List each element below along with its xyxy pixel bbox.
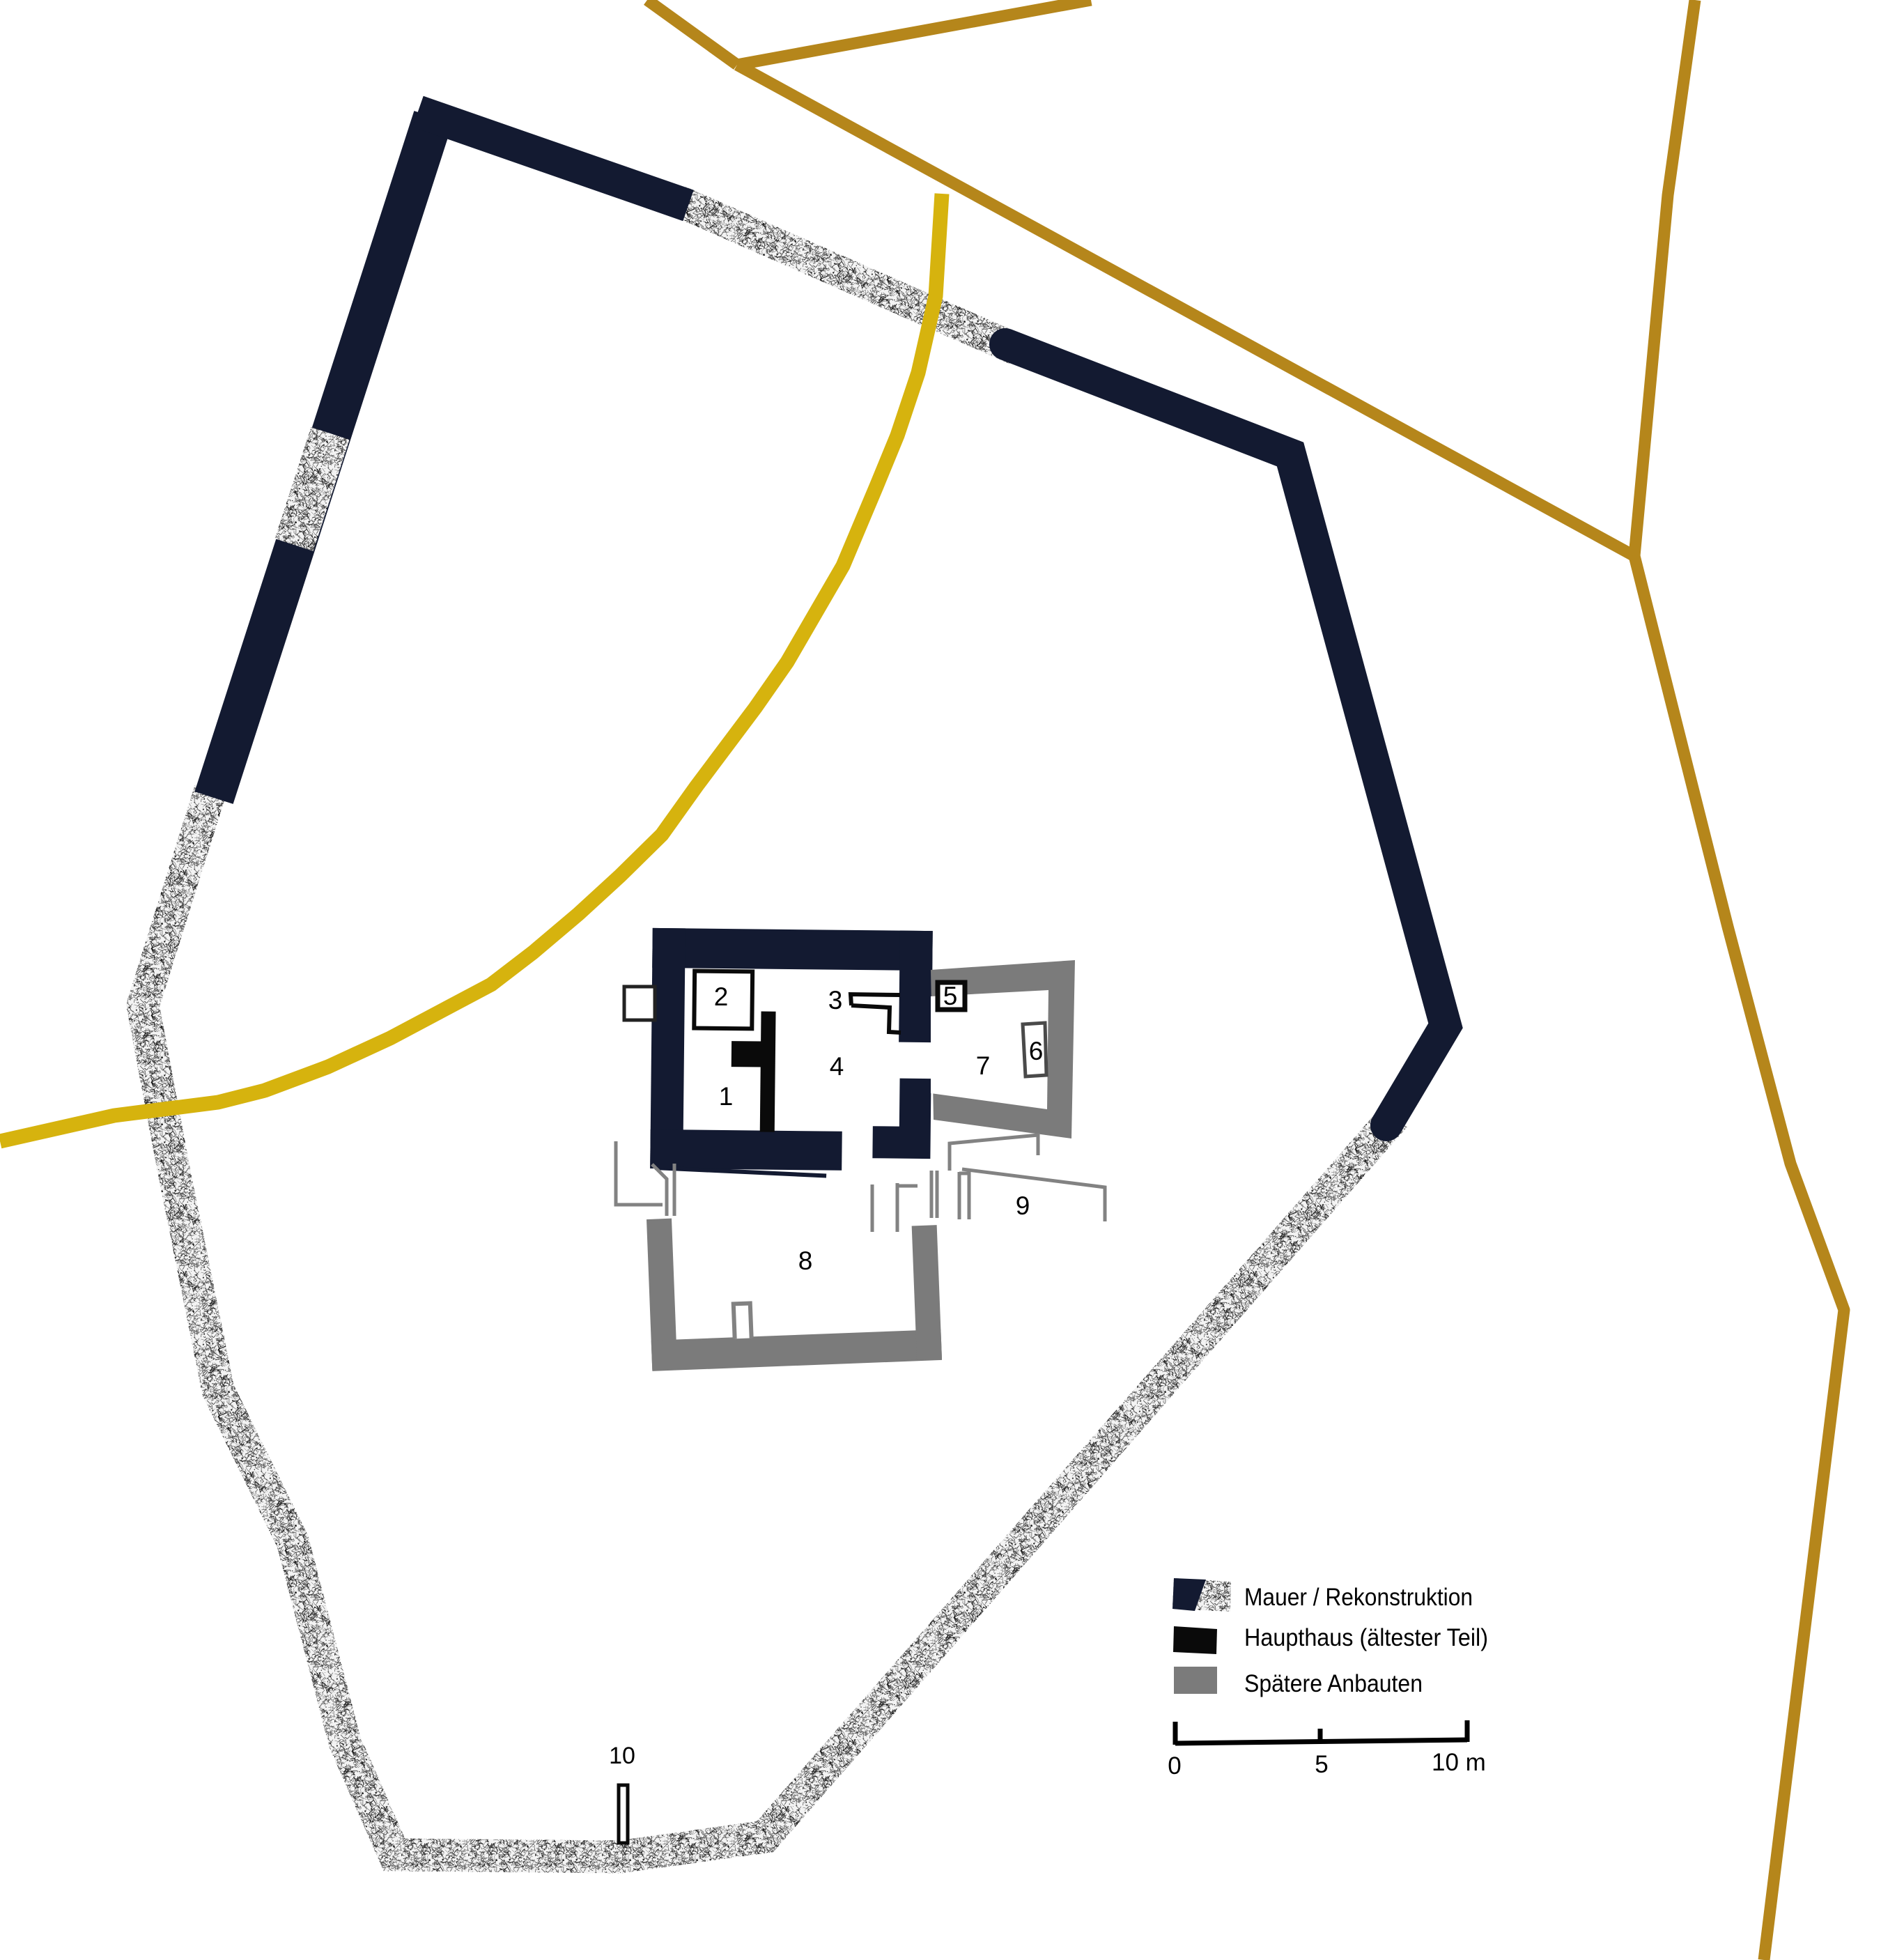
svg-text:6: 6: [1029, 1037, 1044, 1065]
svg-text:5: 5: [943, 982, 958, 1010]
svg-text:5: 5: [1315, 1751, 1328, 1778]
svg-text:Mauer / Rekonstruktion: Mauer / Rekonstruktion: [1244, 1584, 1473, 1611]
svg-text:0: 0: [1168, 1752, 1181, 1780]
svg-text:Spätere Anbauten: Spätere Anbauten: [1244, 1670, 1423, 1697]
svg-text:2: 2: [714, 982, 729, 1011]
svg-text:9: 9: [1016, 1191, 1030, 1220]
svg-text:10 m: 10 m: [1432, 1749, 1486, 1776]
svg-text:10: 10: [609, 1743, 635, 1769]
svg-text:4: 4: [830, 1052, 844, 1081]
svg-text:Haupthaus (ältester Teil): Haupthaus (ältester Teil): [1244, 1624, 1488, 1651]
svg-text:3: 3: [828, 986, 843, 1014]
svg-text:1: 1: [719, 1082, 734, 1111]
svg-text:7: 7: [976, 1051, 991, 1080]
svg-text:8: 8: [798, 1247, 813, 1275]
